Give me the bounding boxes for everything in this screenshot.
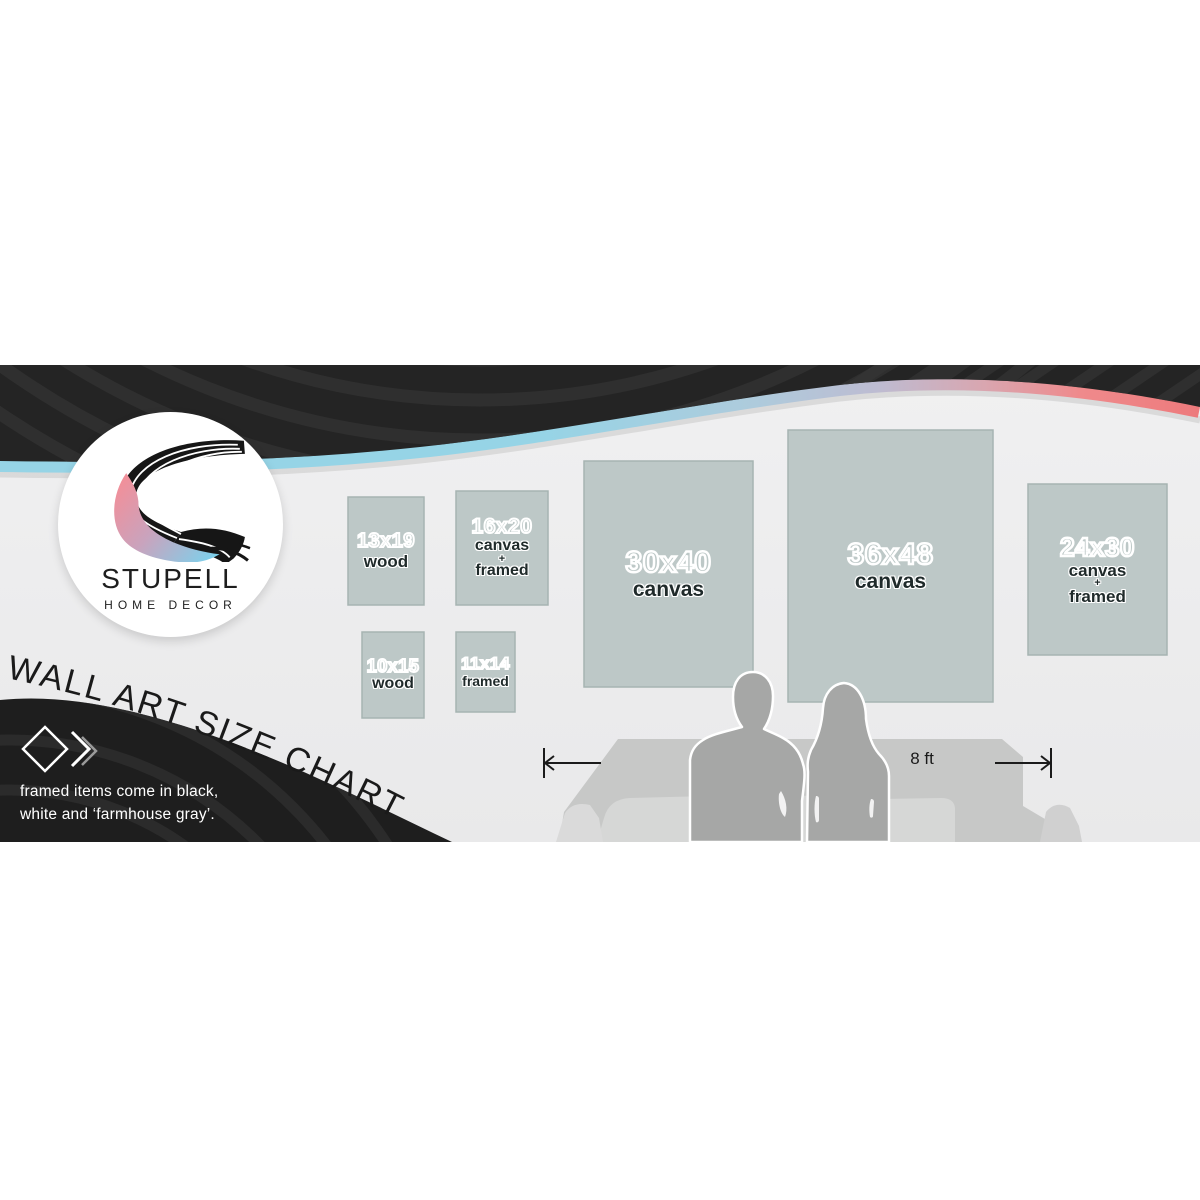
art-box-10x15: [362, 632, 424, 718]
art-box-30x40: [584, 461, 753, 687]
art-box-36x48: [788, 430, 993, 702]
note-line-2: white and ‘farmhouse gray’.: [20, 803, 218, 826]
logo-circle: STUPELL HOME DECOR: [58, 412, 283, 637]
infographic-canvas: WALL ART SIZE CHART: [0, 0, 1200, 1200]
brand-tagline: HOME DECOR: [58, 598, 283, 612]
note-line-1: framed items come in black,: [20, 780, 218, 803]
art-box-24x30: [1028, 484, 1167, 655]
framed-colors-note: framed items come in black, white and ‘f…: [20, 780, 218, 826]
art-box-16x20: [456, 491, 548, 605]
measurement-label: 8 ft: [887, 749, 957, 769]
art-box-11x14: [456, 632, 515, 712]
brand-logo-icon: [110, 434, 252, 562]
brand-name: STUPELL: [58, 563, 283, 595]
art-box-13x19: [348, 497, 424, 605]
